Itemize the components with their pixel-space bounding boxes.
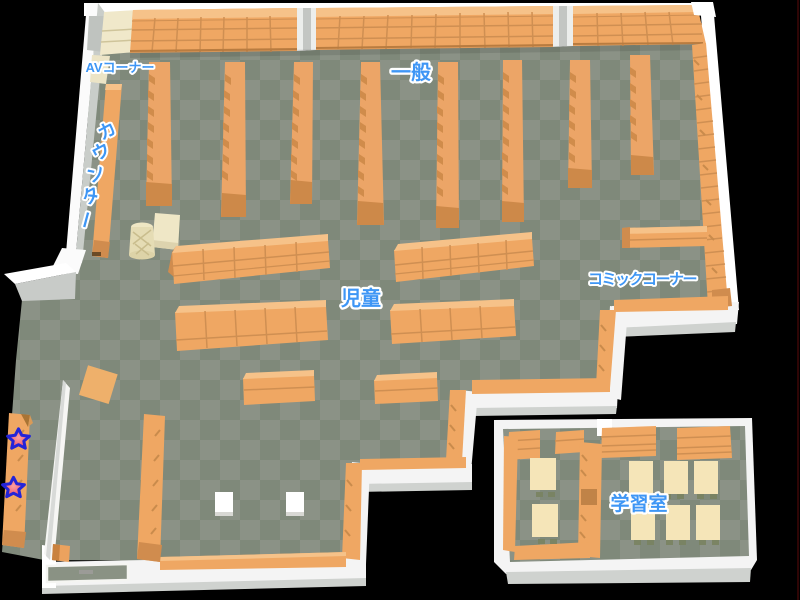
svg-text:AVコーナー: AVコーナー (85, 60, 154, 75)
svg-text:コミックコーナー: コミックコーナー (588, 271, 697, 288)
svg-text:一般: 一般 (391, 60, 431, 84)
svg-text:児童: 児童 (340, 286, 381, 310)
svg-text:学習室: 学習室 (610, 492, 667, 515)
